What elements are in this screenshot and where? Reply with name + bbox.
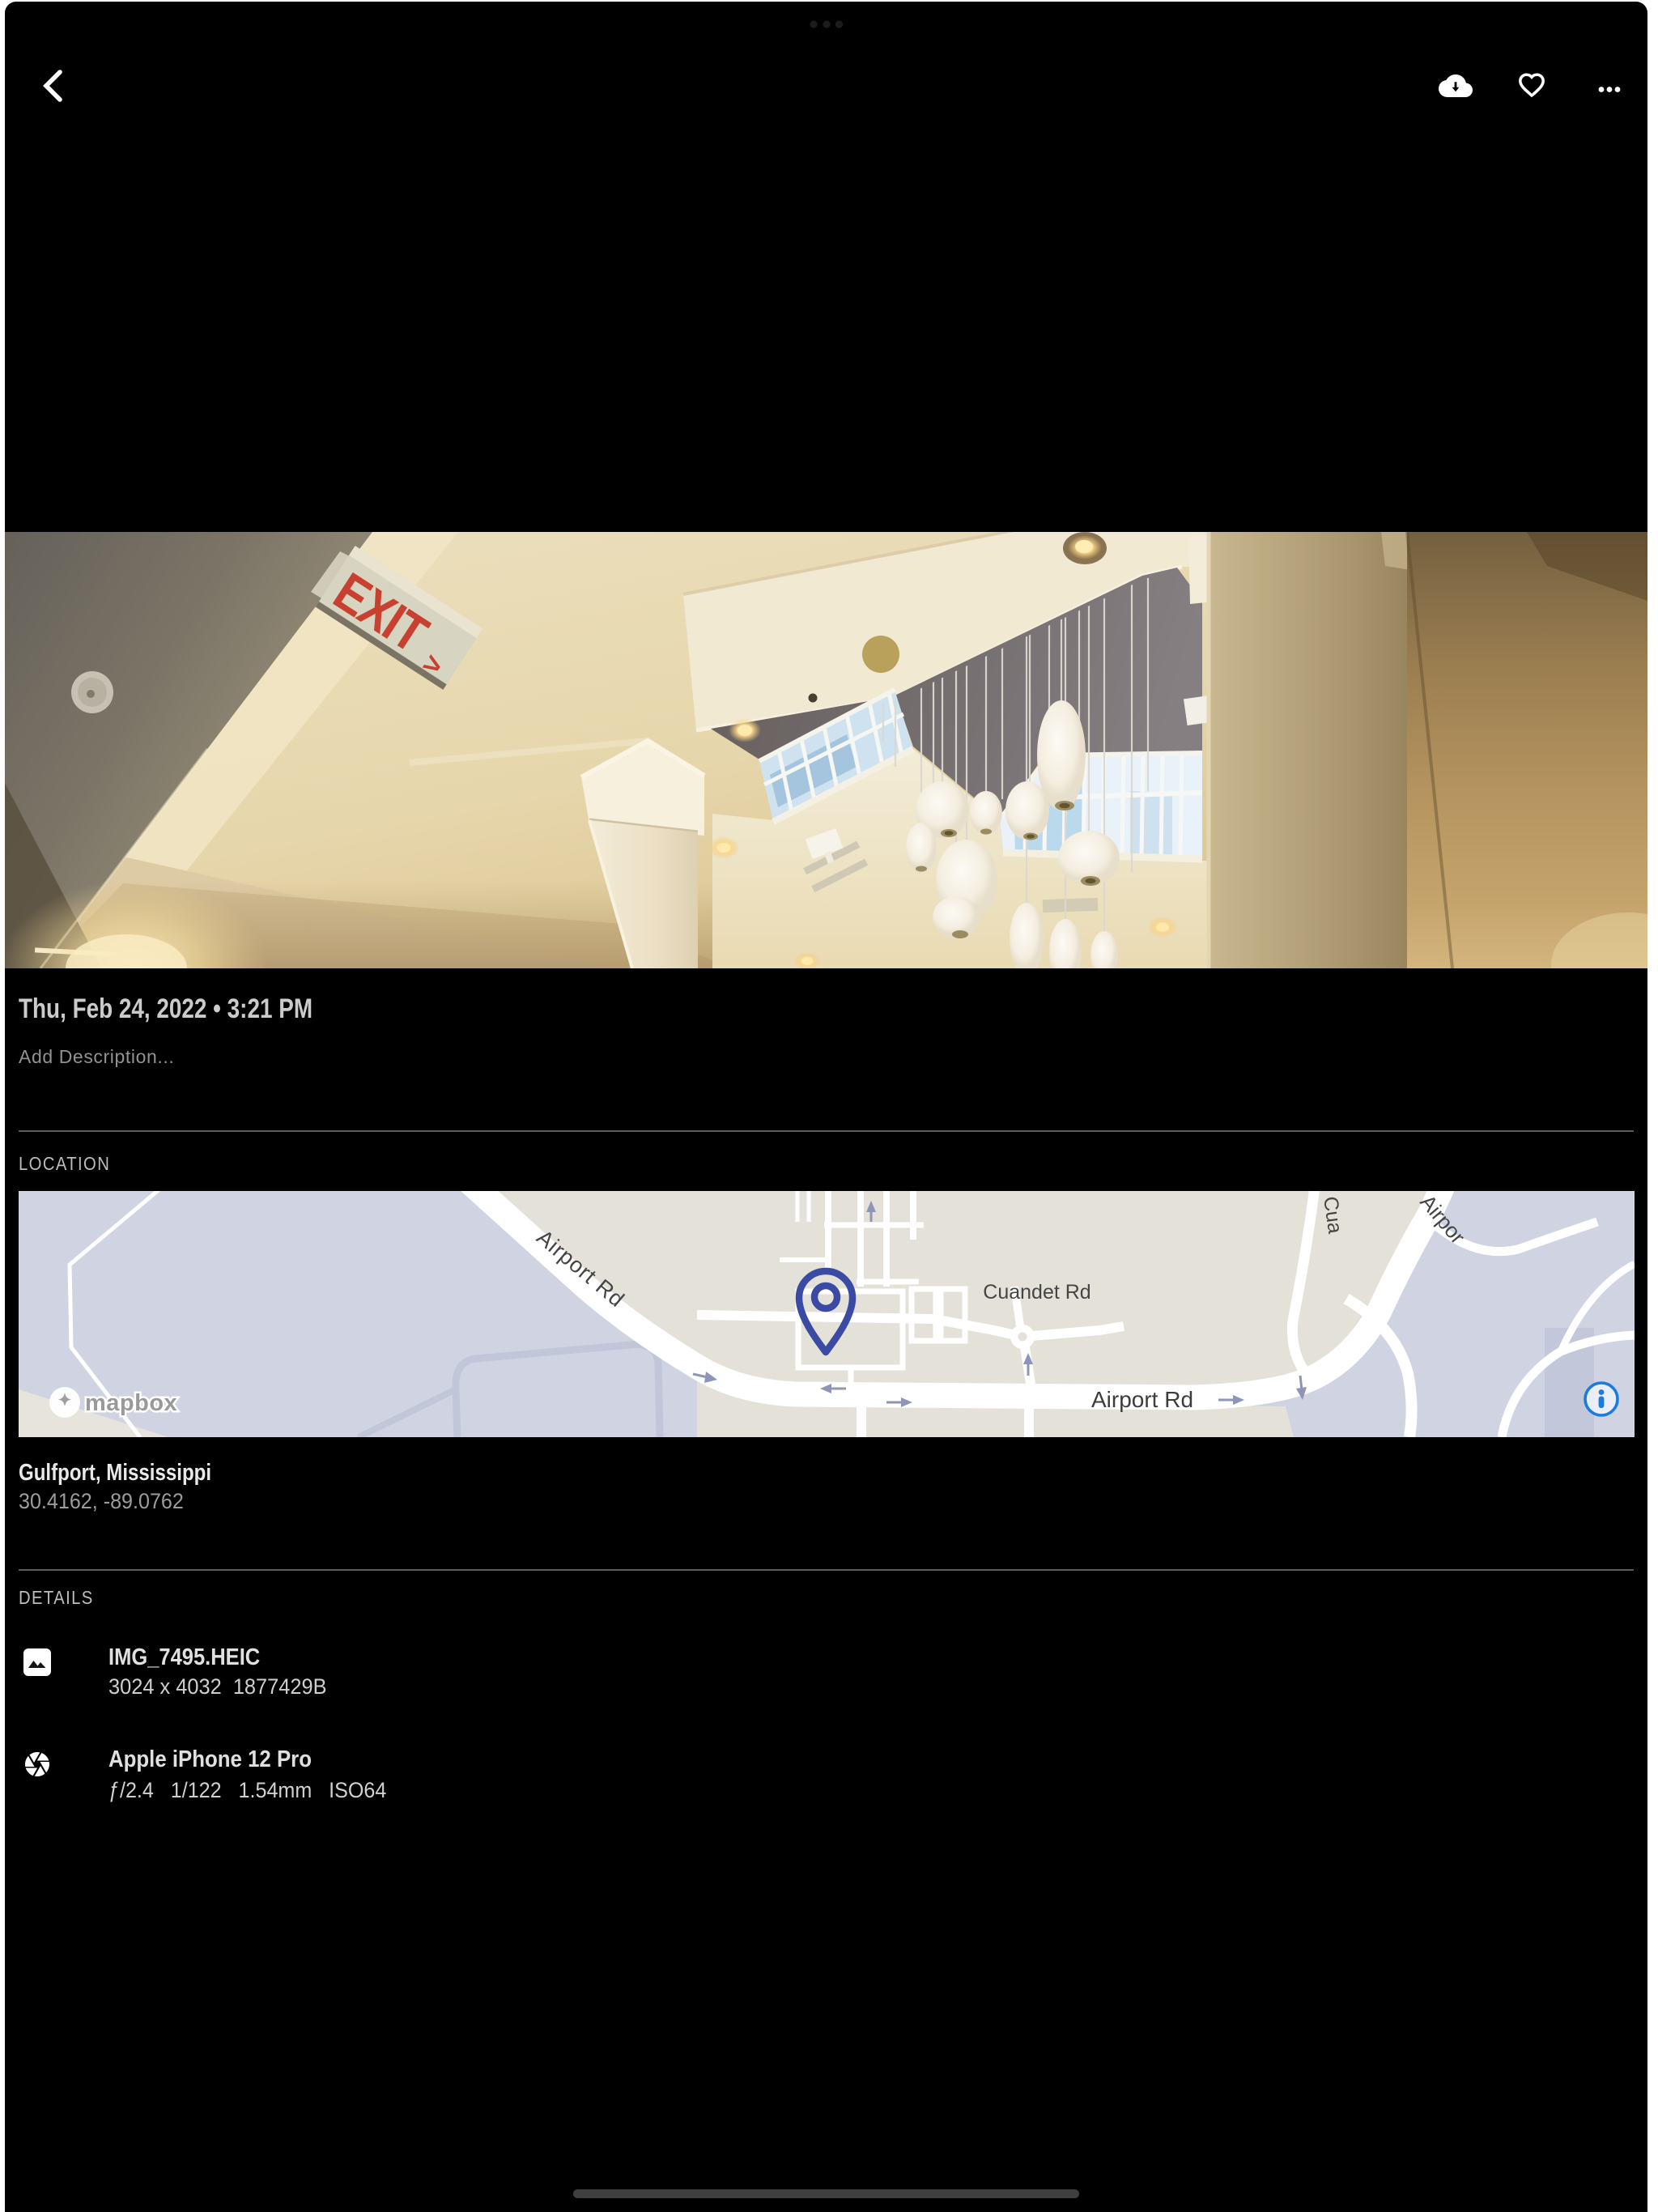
svg-text:Airport Rd: Airport Rd: [1091, 1387, 1193, 1412]
svg-text:Cuandet Rd: Cuandet Rd: [983, 1281, 1090, 1304]
svg-text:mapbox: mapbox: [85, 1390, 177, 1416]
